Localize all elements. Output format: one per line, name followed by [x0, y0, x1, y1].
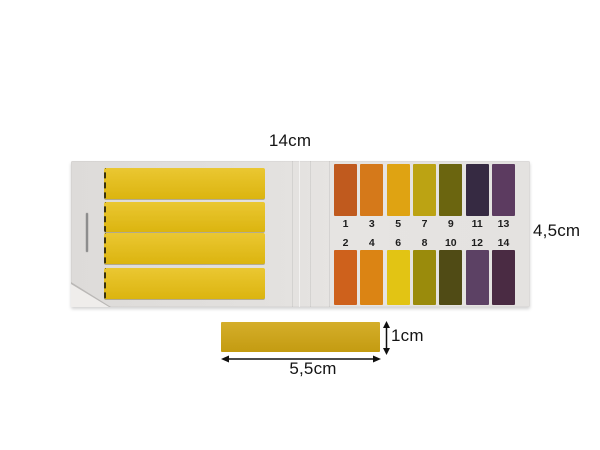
staple [86, 213, 88, 252]
ph-swatch-11 [466, 164, 489, 216]
ph-column-13-14: 13 14 [492, 161, 515, 307]
ph-column-11-12: 11 12 [466, 161, 489, 307]
ph-column-5-6: 5 6 [387, 161, 410, 307]
width-dimension-label: 14cm [230, 132, 350, 151]
fold-line [292, 161, 293, 307]
ph-number: 4 [360, 238, 383, 248]
ph-swatch-14 [492, 250, 515, 305]
ph-number: 9 [439, 219, 462, 229]
ph-number: 8 [413, 238, 436, 248]
ph-swatch-6 [387, 250, 410, 305]
ph-swatch-5 [387, 164, 410, 216]
ph-number: 6 [387, 238, 410, 248]
ph-number: 1 [334, 219, 357, 229]
ph-number: 3 [360, 219, 383, 229]
ph-column-1-2: 1 2 [334, 161, 357, 307]
thickness-dimension-label: 1cm [391, 327, 424, 346]
ph-swatch-1 [334, 164, 357, 216]
fold-line [310, 161, 311, 307]
fold-highlight [299, 161, 300, 307]
ph-swatch-9 [439, 164, 462, 216]
length-dimension-label: 5,5cm [273, 360, 353, 379]
ph-number: 13 [492, 219, 515, 229]
test-strip [104, 168, 265, 199]
ph-column-9-10: 9 10 [439, 161, 462, 307]
ph-test-booklet: 1 2 3 4 5 6 7 8 9 10 [71, 161, 530, 307]
ph-number: 10 [439, 238, 462, 248]
ph-number: 12 [466, 238, 489, 248]
ph-number: 5 [387, 219, 410, 229]
ph-swatch-8 [413, 250, 436, 305]
test-strip [104, 233, 265, 264]
ph-swatch-4 [360, 250, 383, 305]
test-strip [104, 202, 265, 232]
test-strip [104, 268, 265, 299]
ph-swatch-13 [492, 164, 515, 216]
ph-swatch-10 [439, 250, 462, 305]
ph-swatch-7 [413, 164, 436, 216]
ph-swatch-12 [466, 250, 489, 305]
ph-number: 11 [466, 219, 489, 229]
single-test-strip [221, 322, 380, 352]
ph-color-chart: 1 2 3 4 5 6 7 8 9 10 [334, 161, 515, 307]
ph-number: 14 [492, 238, 515, 248]
ph-number: 7 [413, 219, 436, 229]
ph-number: 2 [334, 238, 357, 248]
ph-swatch-3 [360, 164, 383, 216]
height-dimension-label: 4,5cm [533, 222, 580, 241]
ph-column-7-8: 7 8 [413, 161, 436, 307]
ph-swatch-2 [334, 250, 357, 305]
ph-column-3-4: 3 4 [360, 161, 383, 307]
fold-line [329, 161, 330, 307]
